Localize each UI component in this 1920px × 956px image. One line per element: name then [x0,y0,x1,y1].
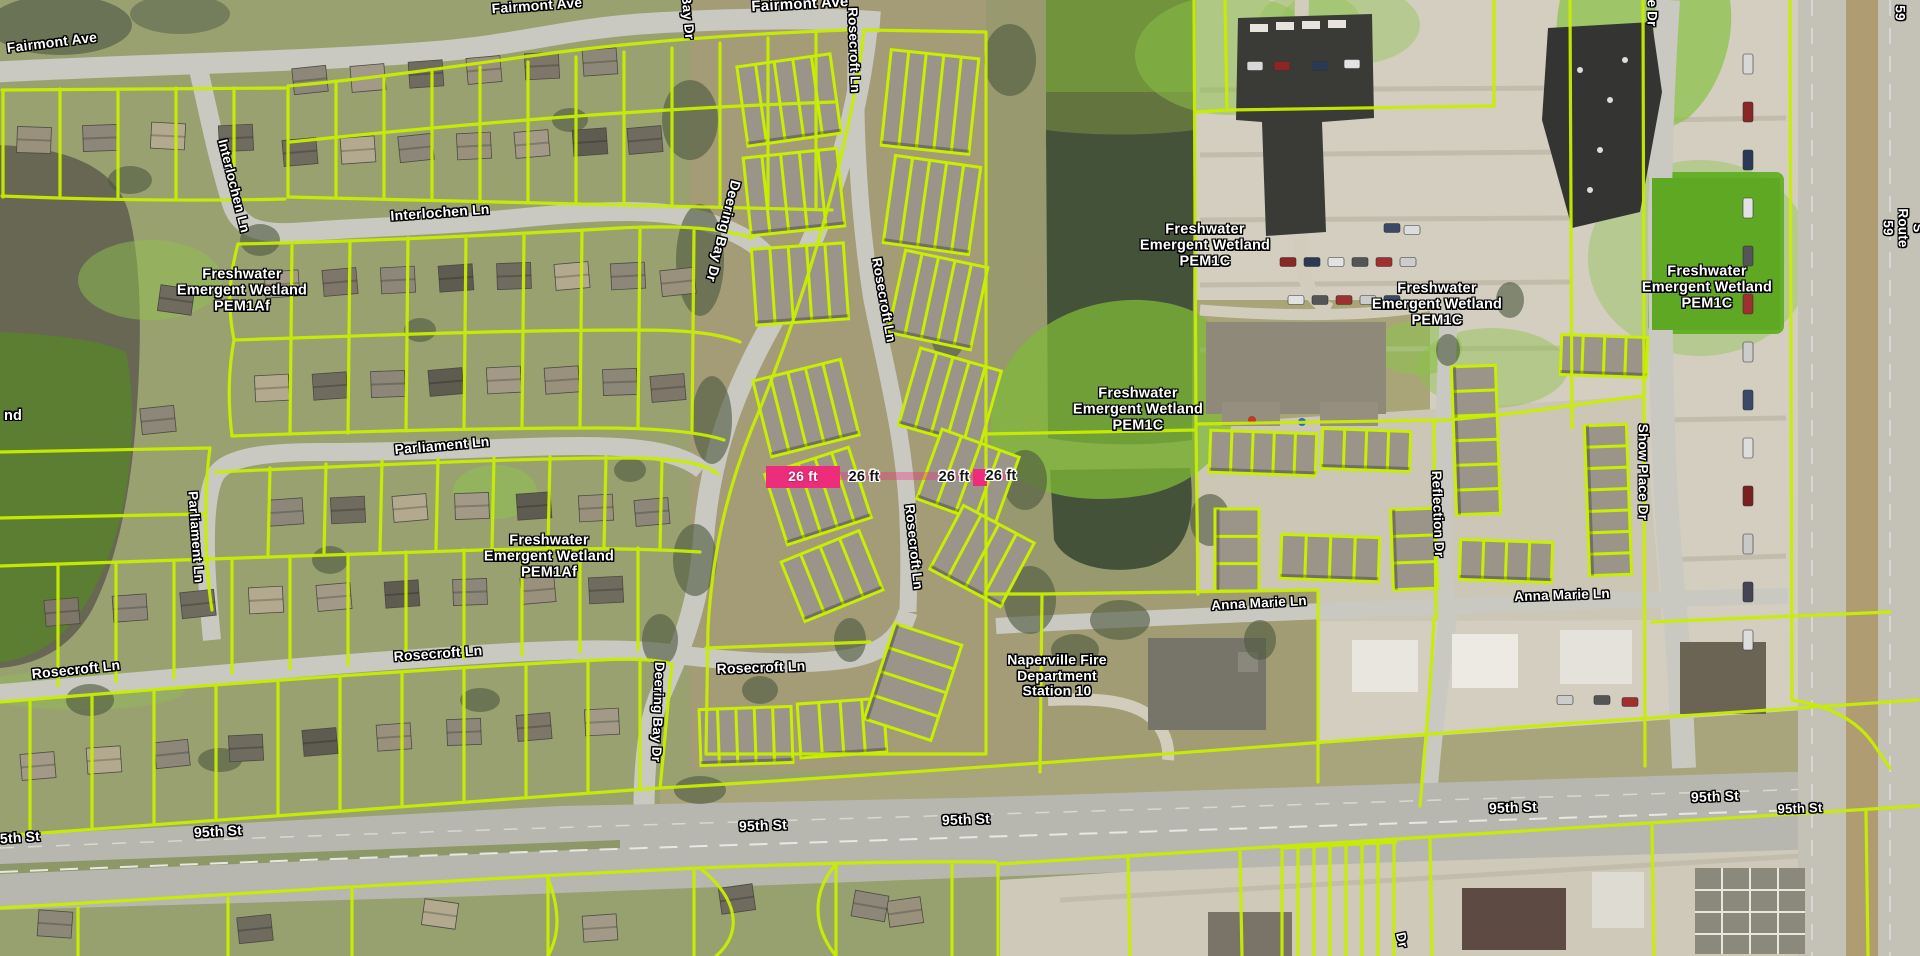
street-label: Reflection Dr [1429,470,1447,557]
street-label: Rosecroft Ln [31,658,121,683]
measurement-label: 26 ft [986,468,1017,484]
street-label: Rosecroft Ln [902,504,926,591]
wetland-label: Freshwater Emergent Wetland PEM1Af [177,267,307,316]
wetland-label: Freshwater Emergent Wetland PEM1C [1140,222,1270,271]
poi-label: Naperville Fire Department Station 10 [1007,652,1107,699]
street-label: e Dr [1644,0,1659,27]
street-label: Bay Dr [679,0,698,40]
street-label: 95th St [1489,799,1538,816]
street-label: Parliament Ln [394,434,490,458]
wetland-label: Freshwater Emergent Wetland PEM1Af [484,533,614,582]
street-label: 95th St [194,823,243,841]
measurement-label: 26 ft [939,469,970,485]
street-label: Deering Bay Dr [703,179,743,284]
street-label: Parliament Ln [185,491,206,584]
street-label: Rosecroft Ln [716,659,805,678]
map-labels-layer: Fairmont AveFairmont AveFairmont AveInte… [0,0,1920,956]
street-label: Fairmont Ave [751,0,849,16]
street-label: Anna Marie Ln [1211,593,1307,613]
measurement-label: 26 ft [766,466,840,488]
street-label: Deering Bay Dr [649,662,668,763]
street-label: Rosecroft Ln [869,257,899,344]
wetland-label: Freshwater Emergent Wetland PEM1C [1372,281,1502,330]
street-label: S Route 59 [1880,208,1920,247]
street-label: Show Place Dr [1635,424,1650,520]
street-label: Fairmont Ave [6,30,98,57]
street-label: Anna Marie Ln [1514,586,1610,604]
street-label: Interlochen Ln [390,202,490,225]
street-label: 95th St [942,811,991,828]
street-label: Rosecroft Ln [393,643,483,665]
street-label: Fairmont Ave [491,0,583,17]
street-label: 5th St [0,829,41,847]
street-label: 59 [1892,5,1907,20]
measurement-label [973,469,987,486]
wetland-label: nd [4,408,22,424]
street-label: 95th St [1777,801,1822,817]
street-label: 95th St [739,817,788,834]
street-label: Dr [1393,931,1411,949]
map-canvas[interactable]: Fairmont AveFairmont AveFairmont AveInte… [0,0,1920,956]
wetland-label: Freshwater Emergent Wetland PEM1C [1642,264,1772,313]
wetland-label: Freshwater Emergent Wetland PEM1C [1073,386,1203,435]
street-label: 95th St [1691,788,1740,805]
measurement-label: 26 ft [849,469,880,485]
street-label: Interlochen Ln [215,138,253,235]
street-label: Rosecroft Ln [845,7,863,93]
